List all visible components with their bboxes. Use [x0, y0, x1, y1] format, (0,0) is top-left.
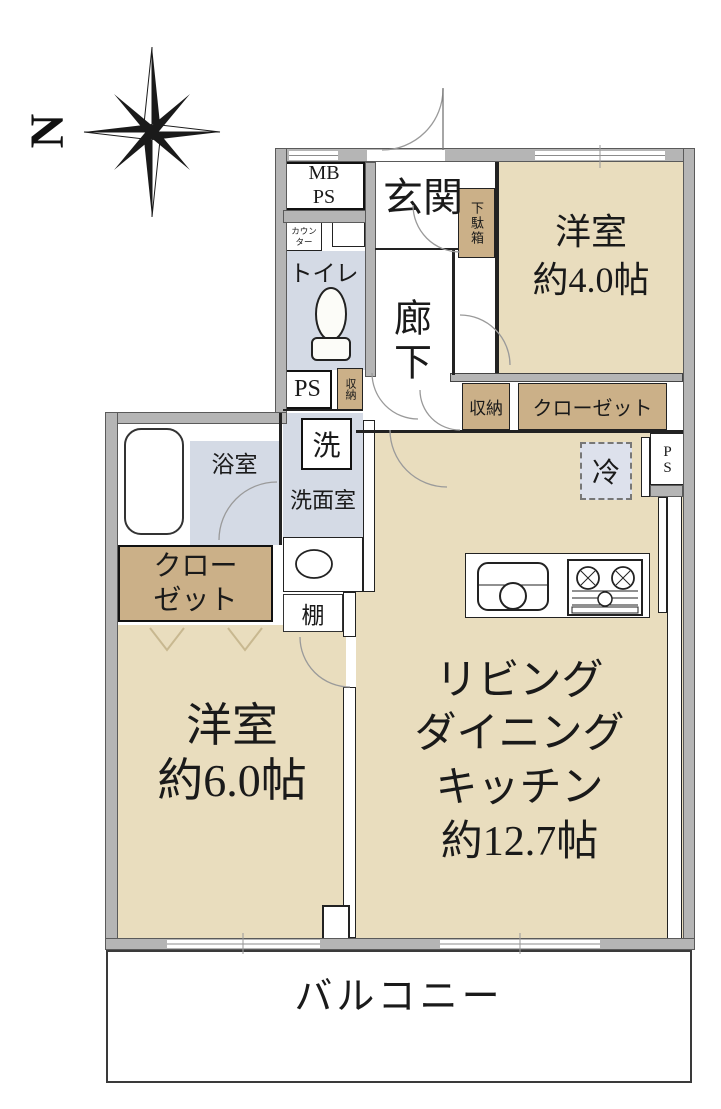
hall-door-arc — [420, 390, 460, 430]
ldk-label: リビング ダイニング キッチン 約12.7帖 — [356, 648, 683, 876]
wall-closet-strip-top — [450, 373, 683, 382]
window-bottom-ldk — [440, 940, 600, 948]
wall-western4-left — [495, 162, 499, 373]
storage-mid-box: 収納 — [462, 383, 510, 430]
pipe-space-upper: PS — [283, 370, 332, 409]
washer-box: 洗 — [301, 418, 352, 470]
wall-left-lower — [105, 412, 118, 950]
compass-rose-icon — [84, 47, 220, 217]
entrance-door-opening — [367, 150, 445, 161]
bathtub-icon — [125, 429, 183, 534]
toilet-small-box — [332, 222, 365, 247]
wall-bath-right — [279, 413, 282, 545]
wall-mid-vertical — [365, 162, 376, 377]
entrance-step-line — [375, 248, 458, 250]
balcony-label: バルコニー — [106, 968, 692, 1016]
western4-label: 洋室 約4.0帖 — [499, 205, 683, 309]
closet-left-box: クロー ゼット — [118, 545, 273, 622]
wall-washroom-ldk — [363, 420, 375, 592]
wall-fridge-side — [641, 437, 650, 497]
sink-cabinet-box — [283, 537, 363, 592]
wall-ps-niche-bottom — [650, 485, 683, 497]
window-top-western4 — [535, 151, 665, 160]
floor-plan: バルコニー MB PS カウン ター PS 収納 下駄箱 収納 クローゼット 冷… — [0, 0, 721, 1109]
pipe-space-right-label: PS — [652, 437, 682, 483]
bathroom-label: 浴室 — [190, 448, 279, 476]
shelf-box: 棚 — [283, 594, 343, 632]
duct-thin-rect — [658, 497, 667, 613]
washroom-label: 洗面室 — [283, 486, 363, 512]
counter-box: カウン ター — [286, 222, 322, 251]
wall-step-top — [105, 412, 287, 424]
wall-western6-ldk-lower — [343, 687, 356, 938]
wall-western6-ldk-upper — [343, 592, 356, 637]
closet-right-box: クローゼット — [518, 383, 667, 430]
pillar — [322, 905, 350, 938]
window-top-left — [289, 151, 338, 160]
entrance-door-arc — [382, 89, 443, 150]
window-strip-right — [667, 497, 682, 938]
wall-hall-entry-divider — [452, 250, 455, 375]
compass-north-label: N — [21, 113, 74, 148]
refrigerator-box: 冷 — [580, 442, 632, 500]
hallway-label: 廊下 — [386, 290, 432, 394]
entrance-label: 玄関 — [371, 170, 475, 218]
western6-label: 洋室 約6.0帖 — [118, 695, 346, 811]
washroom-top-line — [283, 409, 363, 411]
wall-ldk-top-line — [356, 430, 683, 433]
meter-box-ps: MB PS — [283, 162, 365, 210]
storage-hall-box: 収納 — [337, 368, 363, 410]
wall-left-upper — [275, 148, 287, 424]
toilet-label: トイレ — [283, 256, 365, 286]
wall-right — [683, 148, 695, 950]
wall-below-mbps — [283, 210, 375, 223]
window-bottom-western6 — [167, 940, 320, 948]
kitchen-counter — [465, 553, 650, 618]
